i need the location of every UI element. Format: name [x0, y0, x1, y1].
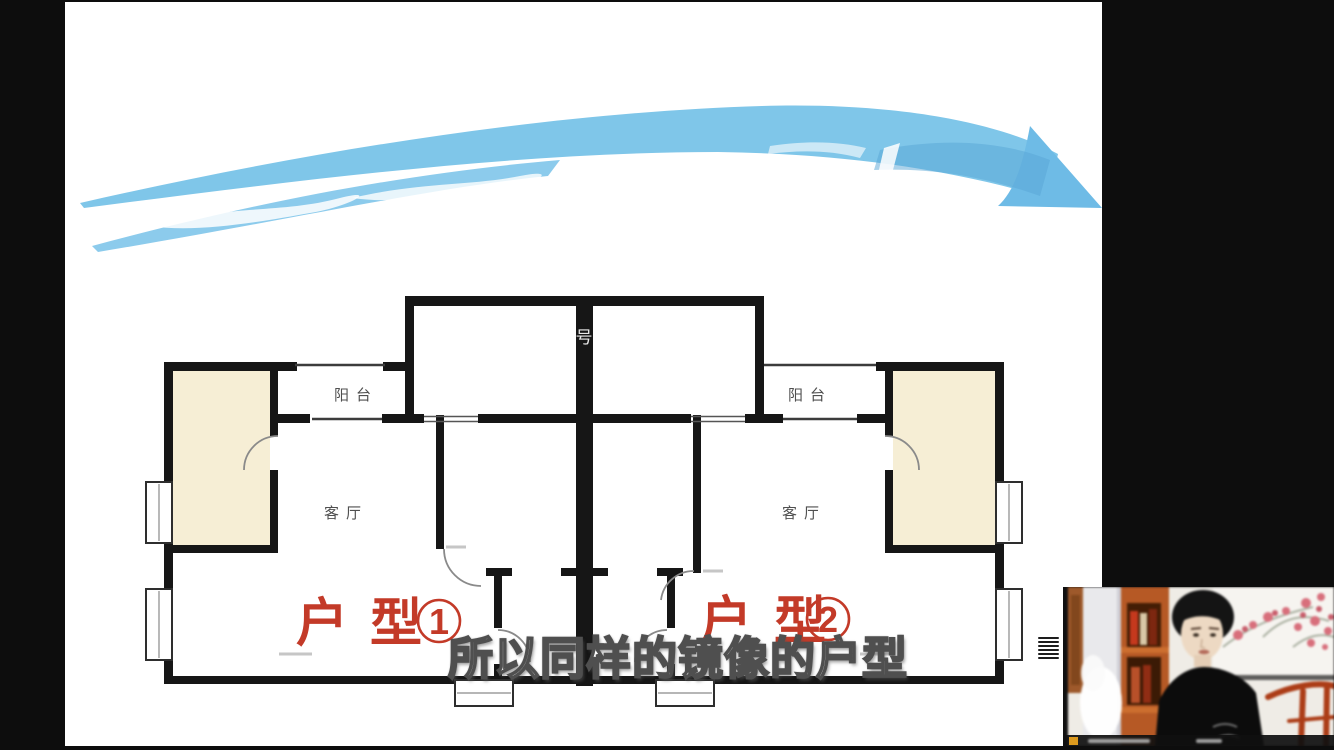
scroll-shadow — [1071, 595, 1080, 685]
book — [1140, 613, 1147, 645]
watermark-glyph: 号 — [576, 328, 593, 347]
webcam-overlay — [1063, 587, 1334, 746]
video-frame: 阳台 阳台 客厅 客厅 户型 1 户型 2 号 所以同样的镜像的户型 — [0, 0, 1334, 750]
neck — [1194, 655, 1211, 667]
caption-text-smudge — [1196, 739, 1222, 743]
webcam-caption-bar — [1063, 735, 1334, 746]
book — [1149, 609, 1157, 645]
living-room-label-unit1: 客厅 — [324, 505, 368, 522]
shelf-edge — [1121, 647, 1169, 653]
living-room-label-unit2: 客厅 — [782, 505, 826, 522]
balcony-label-unit2: 阳台 — [788, 387, 832, 404]
blossom-painting — [1213, 587, 1334, 680]
book — [1143, 665, 1151, 703]
caption-text-smudge — [1088, 739, 1150, 743]
blurred-hand-upper — [1081, 655, 1105, 691]
webcam-picture — [1063, 587, 1334, 746]
accent-room-left — [173, 371, 270, 545]
video-subtitle: 所以同样的镜像的户型 — [388, 622, 968, 687]
balcony-label-unit1: 阳台 — [334, 387, 378, 404]
stacked-lines-icon — [1038, 637, 1059, 661]
webcam-left-edge — [1063, 587, 1068, 746]
book — [1131, 667, 1140, 703]
book — [1130, 611, 1138, 645]
accent-room-right — [893, 371, 995, 545]
curved-arrow — [80, 106, 1102, 252]
caption-logo-icon — [1069, 737, 1078, 745]
